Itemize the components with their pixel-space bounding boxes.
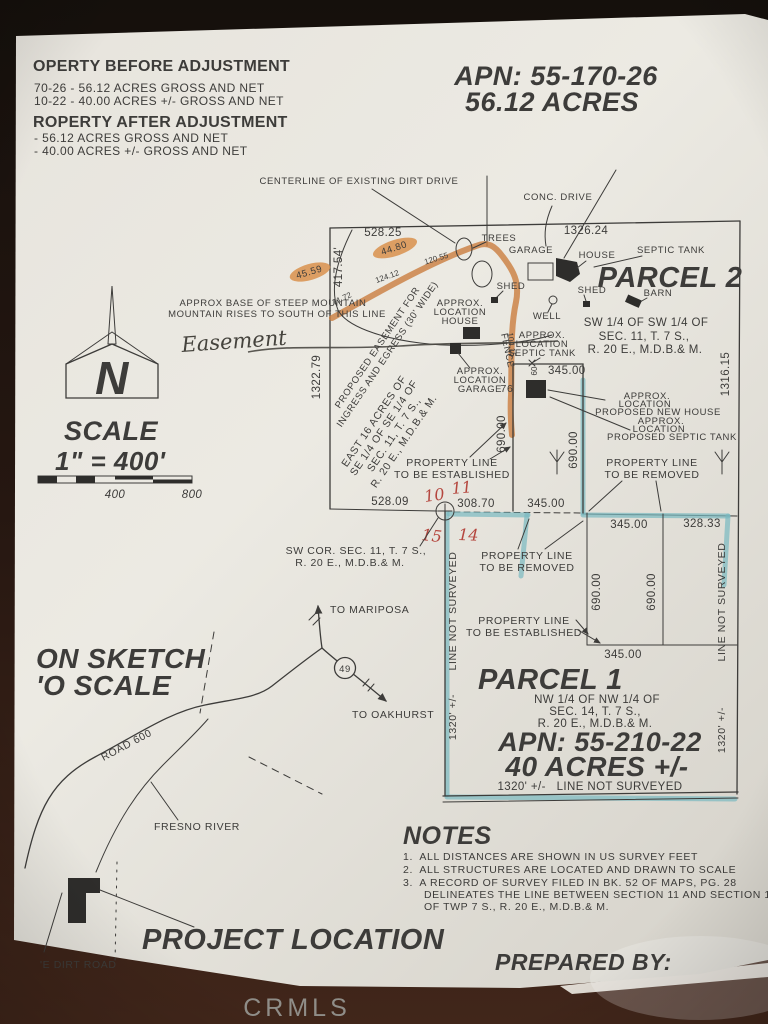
crmls-watermark: CRMLS (243, 994, 351, 1022)
survey-map-photo: OPERTY BEFORE ADJUSTMENT 70-26 - 56.12 A… (0, 0, 768, 1024)
photo-vignette (0, 0, 768, 1024)
